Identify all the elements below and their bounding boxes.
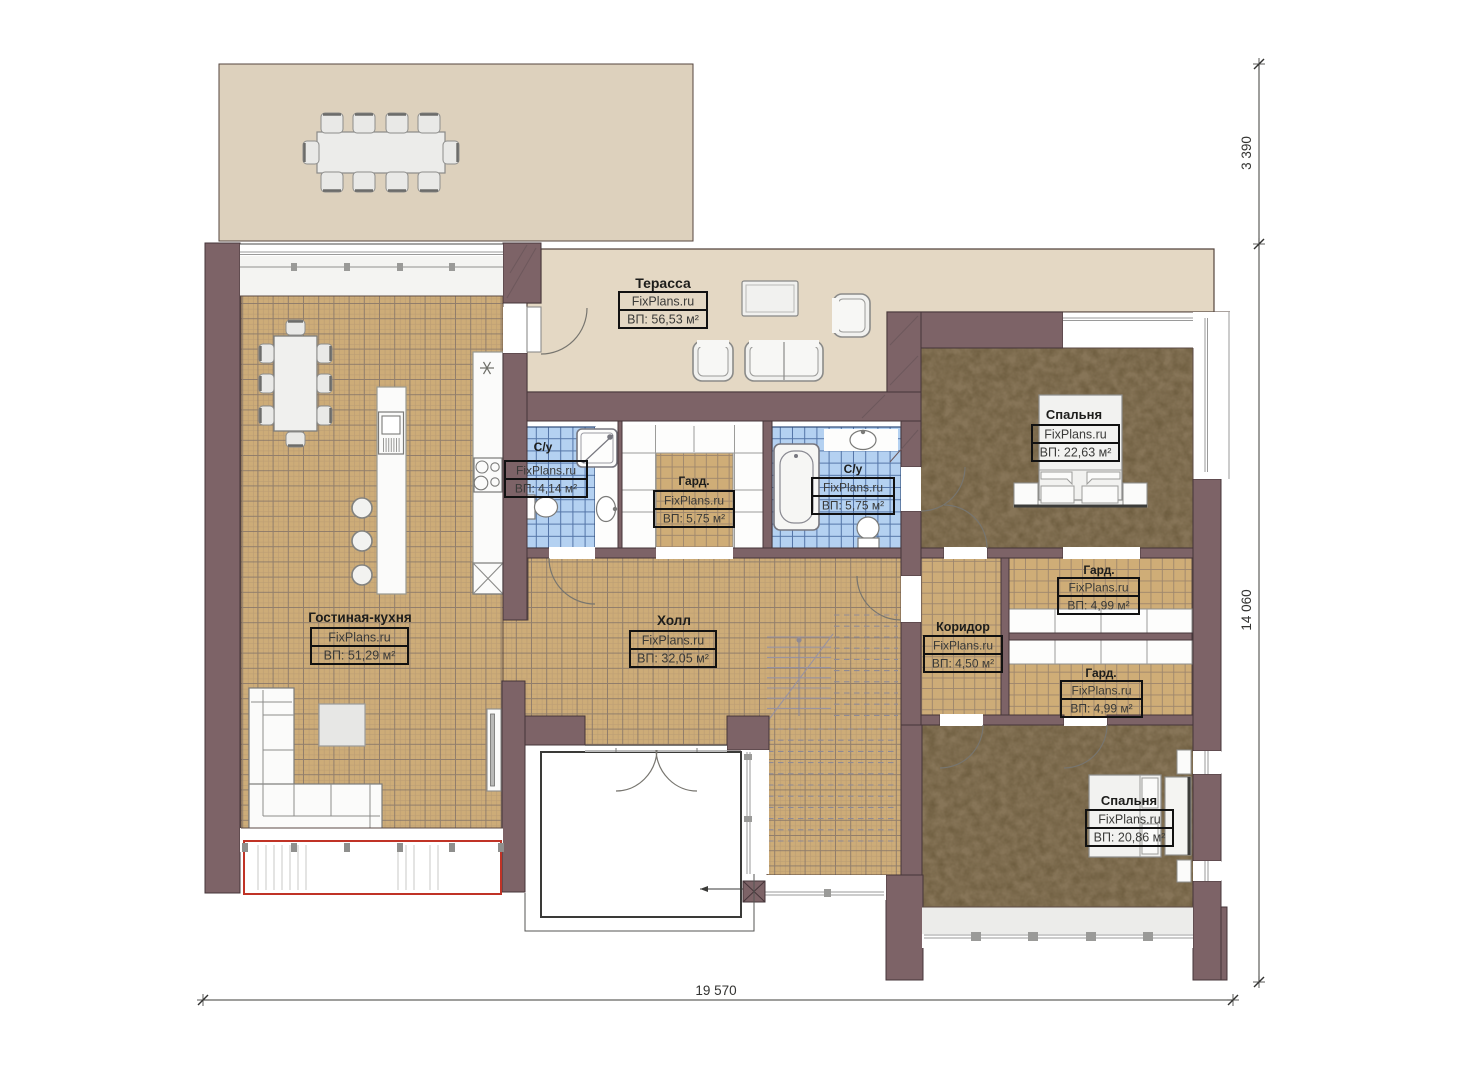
svg-text:С/у: С/у xyxy=(844,462,863,476)
svg-text:Гард.: Гард. xyxy=(1085,666,1116,680)
svg-text:FixPlans.ru: FixPlans.ru xyxy=(642,633,705,647)
svg-text:Спальня: Спальня xyxy=(1046,407,1102,422)
svg-text:ВП: 4,99 м²: ВП: 4,99 м² xyxy=(1067,598,1129,612)
svg-text:FixPlans.ru: FixPlans.ru xyxy=(328,630,391,644)
svg-text:FixPlans.ru: FixPlans.ru xyxy=(1098,812,1161,826)
svg-text:ВП: 51,29 м²: ВП: 51,29 м² xyxy=(324,648,396,662)
svg-text:ВП: 56,53 м²: ВП: 56,53 м² xyxy=(627,312,699,326)
svg-text:Гостиная-кухня: Гостиная-кухня xyxy=(308,610,411,625)
svg-text:3 390: 3 390 xyxy=(1239,136,1254,170)
svg-text:ВП: 32,05 м²: ВП: 32,05 м² xyxy=(637,651,709,665)
svg-text:ВП: 5,75 м²: ВП: 5,75 м² xyxy=(663,511,725,525)
svg-text:FixPlans.ru: FixPlans.ru xyxy=(632,294,695,308)
svg-text:Холл: Холл xyxy=(657,613,691,628)
svg-text:Спальня: Спальня xyxy=(1101,793,1157,808)
svg-text:Гард.: Гард. xyxy=(1083,563,1114,577)
svg-text:FixPlans.ru: FixPlans.ru xyxy=(664,493,724,507)
svg-text:Терасса: Терасса xyxy=(635,275,691,291)
svg-text:ВП: 22,63 м²: ВП: 22,63 м² xyxy=(1040,445,1112,459)
svg-text:FixPlans.ru: FixPlans.ru xyxy=(516,463,576,477)
svg-text:ВП: 4,14 м²: ВП: 4,14 м² xyxy=(515,481,577,495)
svg-text:FixPlans.ru: FixPlans.ru xyxy=(1071,683,1131,697)
svg-text:FixPlans.ru: FixPlans.ru xyxy=(1068,580,1128,594)
svg-text:Гард.: Гард. xyxy=(678,474,709,488)
svg-text:ВП: 20,86 м²: ВП: 20,86 м² xyxy=(1094,830,1166,844)
svg-text:С/у: С/у xyxy=(534,440,553,454)
svg-text:FixPlans.ru: FixPlans.ru xyxy=(1044,427,1107,441)
svg-text:FixPlans.ru: FixPlans.ru xyxy=(933,638,993,652)
svg-text:ВП: 4,50 м²: ВП: 4,50 м² xyxy=(932,656,994,670)
svg-text:ВП: 4,99 м²: ВП: 4,99 м² xyxy=(1070,701,1132,715)
svg-text:14 060: 14 060 xyxy=(1239,589,1254,630)
svg-text:ВП: 5,75 м²: ВП: 5,75 м² xyxy=(822,498,884,512)
svg-text:Коридор: Коридор xyxy=(936,620,990,634)
svg-text:FixPlans.ru: FixPlans.ru xyxy=(823,480,883,494)
svg-text:19 570: 19 570 xyxy=(695,983,736,998)
